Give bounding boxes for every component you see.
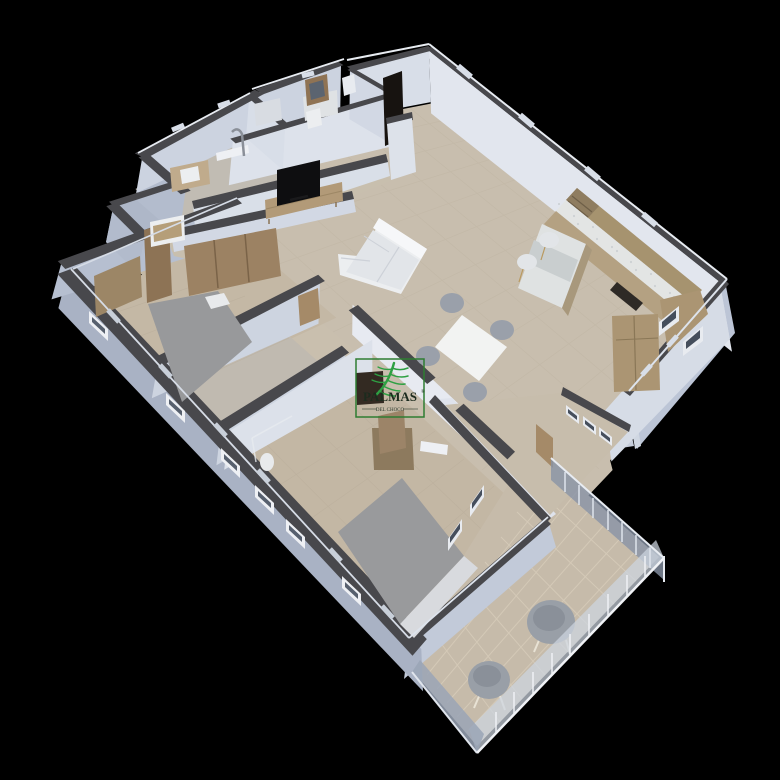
svg-text:®: ®	[421, 389, 425, 395]
svg-text:PALMAS: PALMAS	[363, 389, 417, 404]
svg-text:DEL CHOCO: DEL CHOCO	[376, 408, 405, 413]
